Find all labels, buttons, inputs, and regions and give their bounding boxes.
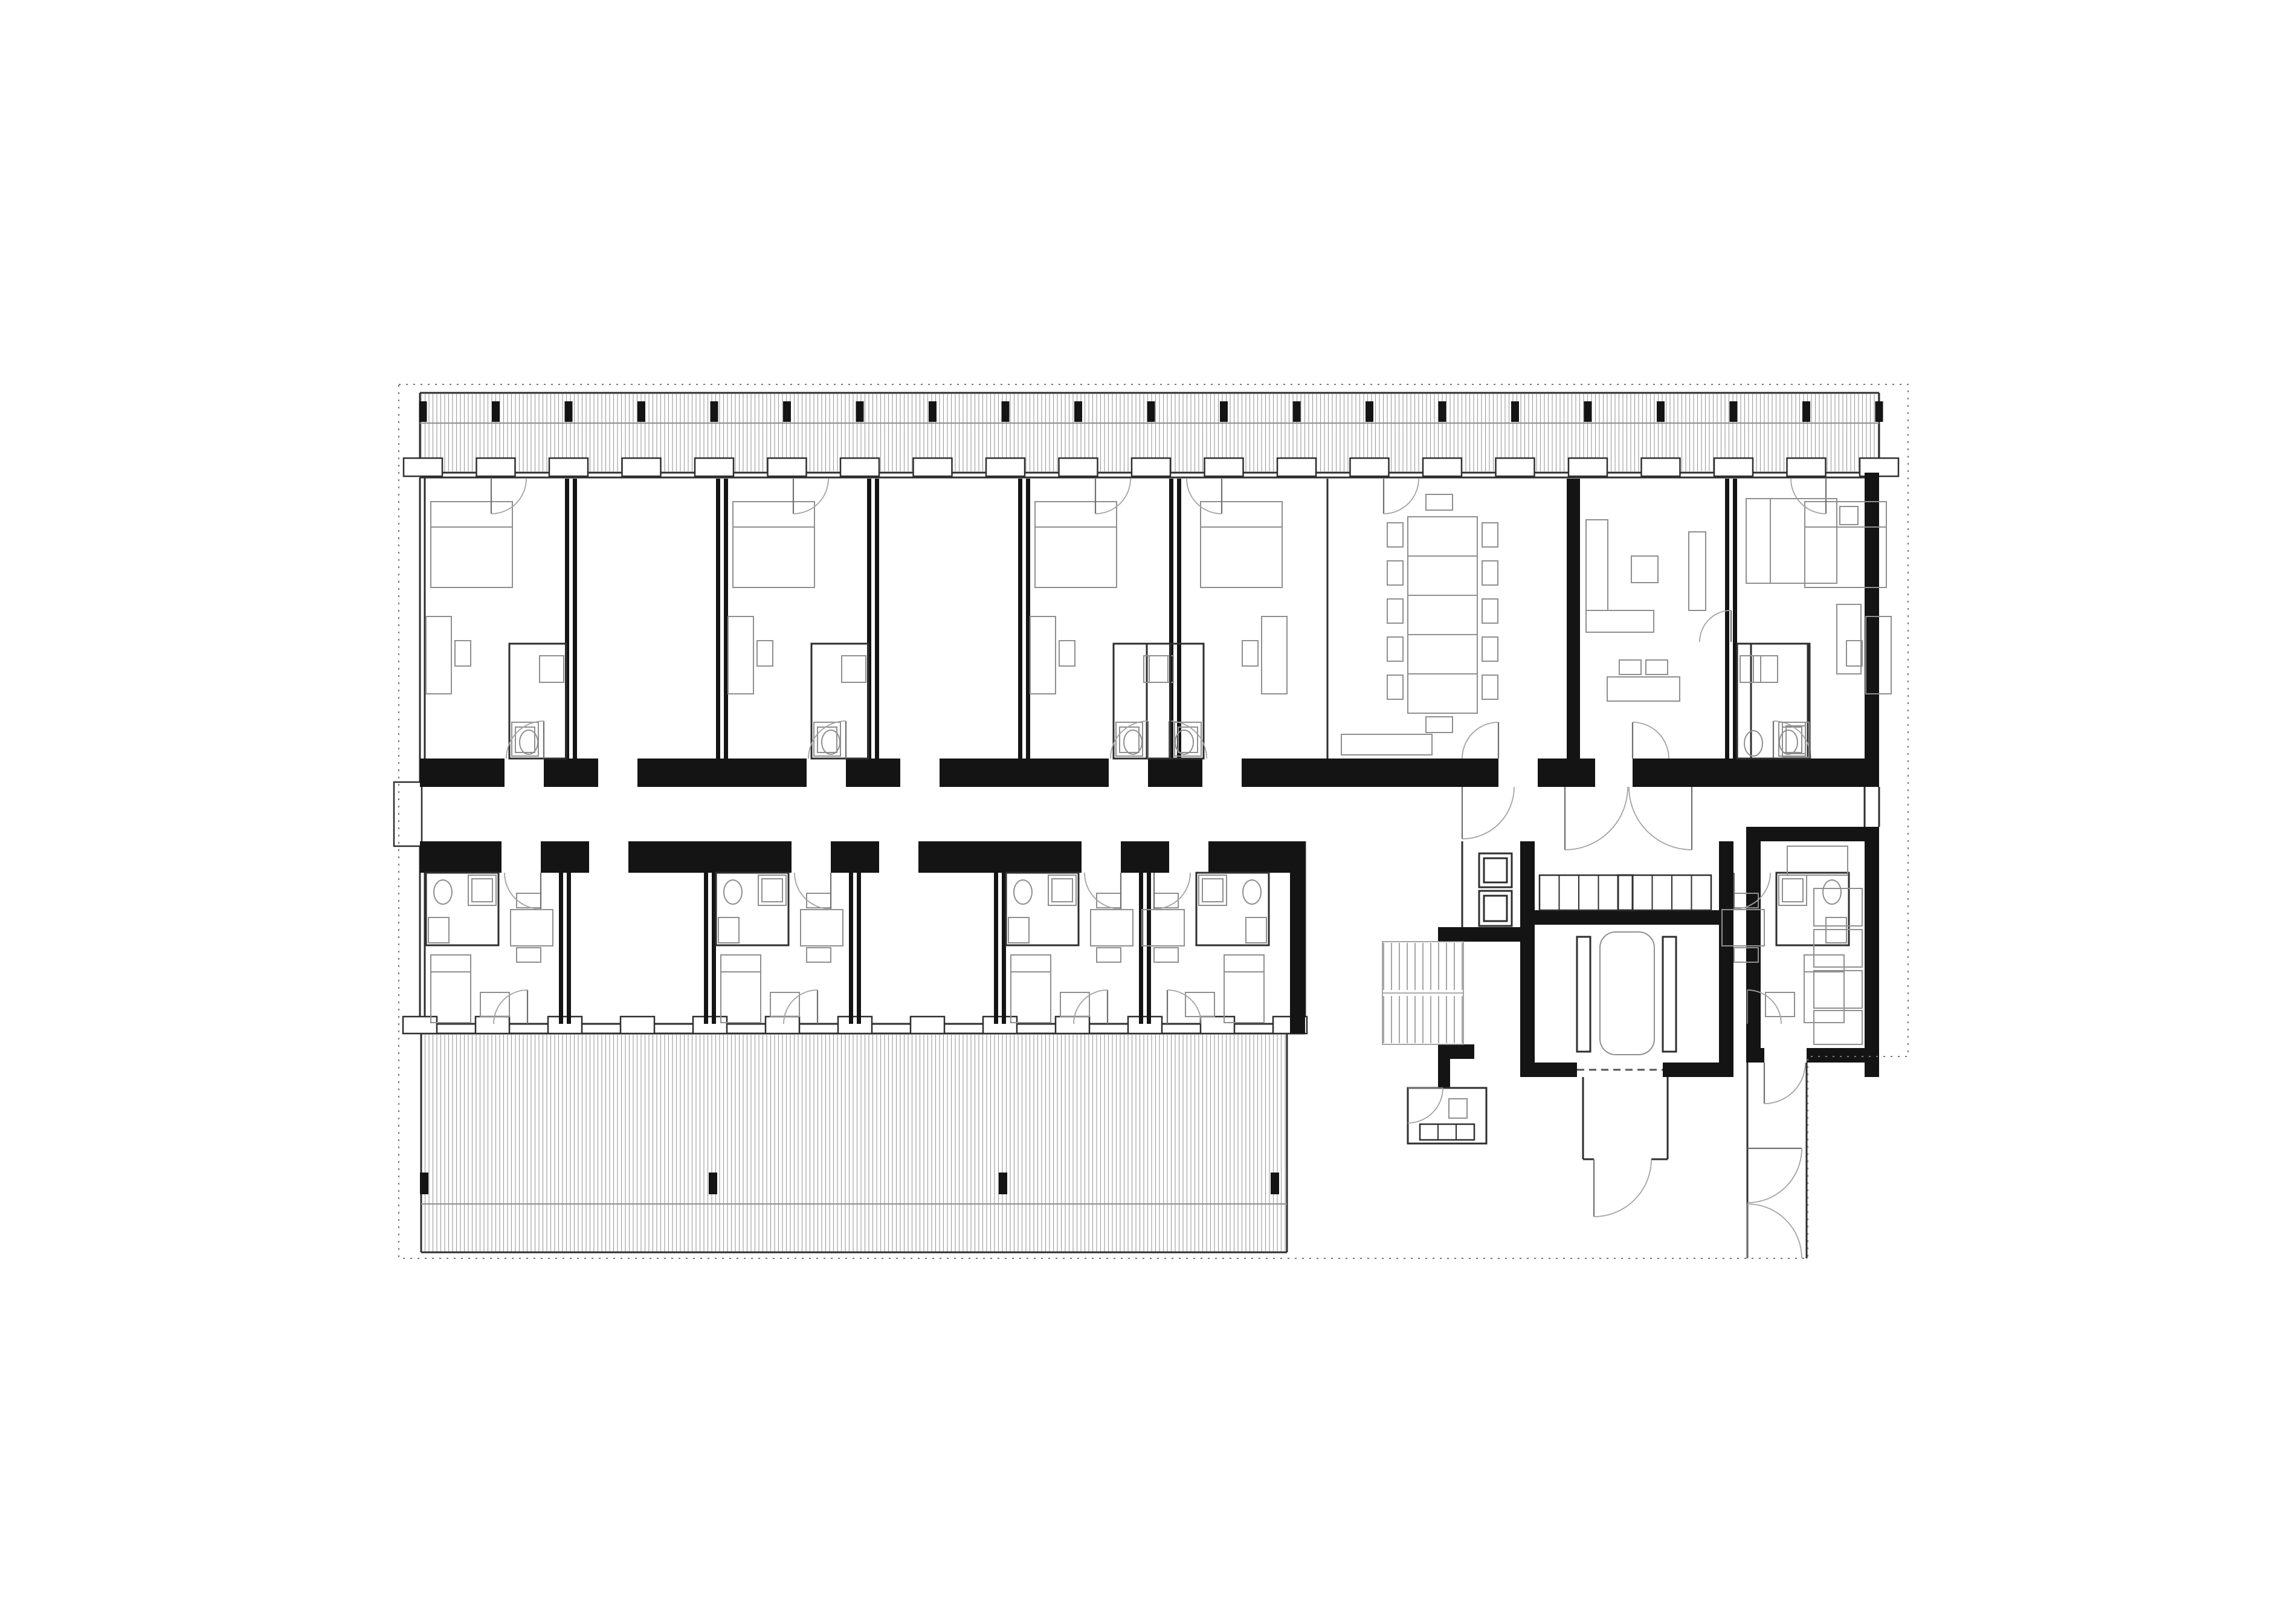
- guest-room-south-5-geometry: [1006, 873, 1133, 1024]
- guest-room-south-3-geometry: [716, 873, 843, 1024]
- guest-room-north-5: [1030, 479, 1170, 759]
- corner-suite: [1586, 499, 1861, 759]
- guest-room-north-1-geometry: [426, 479, 566, 759]
- guest-room-south-5: [1006, 873, 1133, 1024]
- guest-room-north-3-geometry: [728, 479, 868, 759]
- guest-room-north-2-geometry: [1147, 479, 1287, 759]
- core: [1408, 787, 1862, 1258]
- guest-room-south-1-geometry: [426, 873, 553, 1024]
- guest-room-south-1: [426, 873, 553, 1024]
- guest-room-south-2: [1142, 873, 1269, 1024]
- guest-room-north-1: [426, 479, 566, 759]
- guest-room-south-4-geometry: [1722, 873, 1849, 1024]
- floor-plan-drawing: [0, 0, 2296, 1624]
- drawing-page: [0, 0, 2296, 1624]
- guest-room-north-3: [728, 479, 868, 759]
- guest-room-north-2: [1147, 479, 1287, 759]
- stair: [1382, 942, 1463, 1044]
- balcony-south: [421, 1034, 1287, 1252]
- meeting-room: [1341, 479, 1498, 759]
- guest-room-south-4: [1722, 873, 1849, 1024]
- guest-room-south-3: [716, 873, 843, 1024]
- guest-room-north-5-geometry: [1030, 479, 1170, 759]
- guest-room-south-2-geometry: [1142, 873, 1269, 1024]
